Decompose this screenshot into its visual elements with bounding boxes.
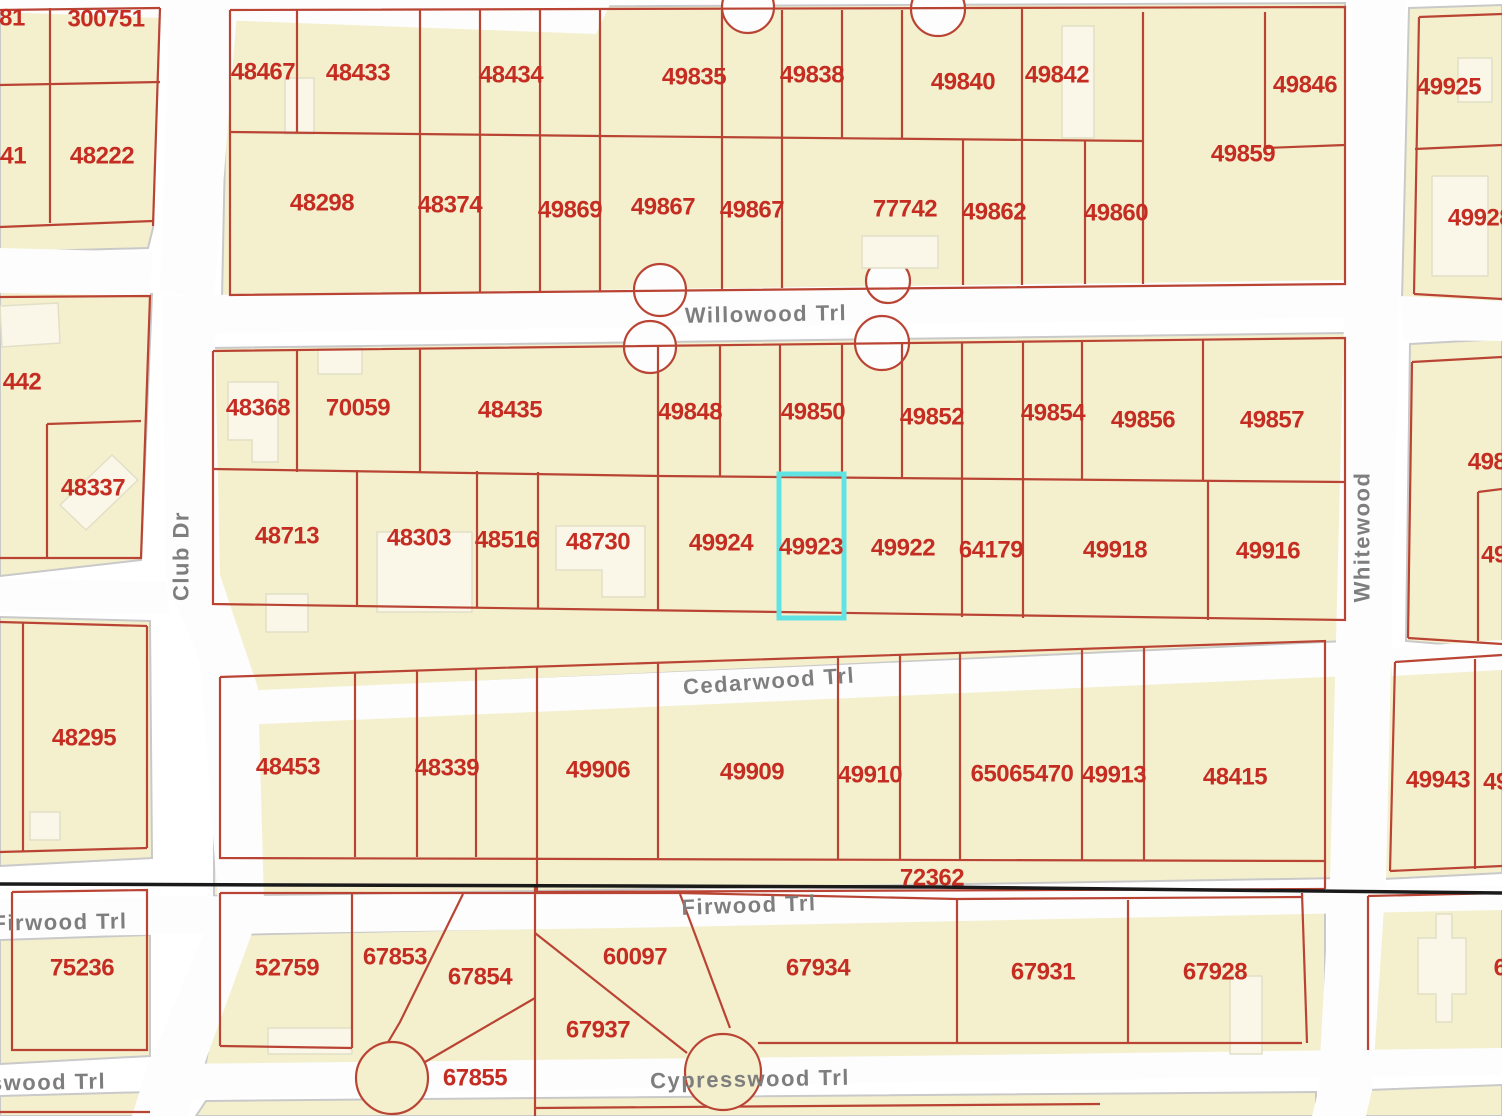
parcel-map-canvas[interactable]: 8130075148441482224846748433484344983549… xyxy=(0,0,1502,1116)
parcel-label[interactable]: 49910 xyxy=(838,762,902,789)
street-name-label: Firwood Trl xyxy=(681,890,817,920)
parcel-label[interactable]: 48434 xyxy=(479,62,544,89)
parcel-label[interactable]: 67931 xyxy=(1011,959,1075,986)
parcel-label[interactable]: 300751 xyxy=(67,6,144,33)
parcel-label[interactable]: 49848 xyxy=(658,399,722,426)
parcel-label[interactable]: 60097 xyxy=(603,944,667,971)
parcel-map-viewport[interactable]: 8130075148441482224846748433484344983549… xyxy=(0,0,1502,1116)
building-footprint xyxy=(0,303,60,347)
building-footprint xyxy=(30,812,60,840)
parcel-label[interactable]: 49856 xyxy=(1111,407,1175,434)
parcel-label[interactable]: 48295 xyxy=(52,725,116,752)
parcel-label[interactable]: 49854 xyxy=(1021,400,1086,427)
city-block xyxy=(0,6,160,252)
street-name-label: Cypresswood Trl xyxy=(650,1065,850,1093)
parcel-label[interactable]: 81 xyxy=(0,5,25,32)
parcel-label[interactable]: 49860 xyxy=(1084,200,1148,227)
parcel-label[interactable]: 49859 xyxy=(1211,141,1275,168)
building-footprint xyxy=(862,236,938,268)
parcel-label[interactable]: 67854 xyxy=(448,964,513,991)
parcel-label[interactable]: 48222 xyxy=(70,143,134,170)
parcel-label[interactable]: 48441 xyxy=(0,143,26,170)
parcel-label[interactable]: 49838 xyxy=(780,62,844,89)
parcel-label[interactable]: 49850 xyxy=(781,399,845,426)
parcel-label[interactable]: 48339 xyxy=(415,755,479,782)
parcel-label[interactable]: 6 xyxy=(1494,955,1502,982)
street-name-label: Firwood Trl xyxy=(0,908,128,935)
parcel-label[interactable]: 48415 xyxy=(1203,764,1267,791)
parcel-label[interactable]: 48467 xyxy=(231,59,295,86)
parcel-label[interactable]: 67853 xyxy=(363,944,427,971)
city-block xyxy=(1406,339,1502,649)
street-name-label: Whitewood xyxy=(1350,472,1375,603)
city-block xyxy=(535,1092,1316,1116)
parcel-label[interactable]: 49909 xyxy=(720,759,784,786)
parcel-label[interactable]: 49846 xyxy=(1273,72,1337,99)
willowood-left-road xyxy=(0,248,152,296)
parcel-label[interactable]: 49842 xyxy=(1025,62,1089,89)
parcel-label[interactable]: 49918 xyxy=(1083,537,1147,564)
parcel-label[interactable]: 49835 xyxy=(662,64,726,91)
parcel-label[interactable]: 48453 xyxy=(256,754,320,781)
parcel-label[interactable]: 49867 xyxy=(631,194,695,221)
street-name-label: Club Dr xyxy=(169,511,194,601)
parcel-label[interactable]: 65065470 xyxy=(971,761,1074,788)
parcel-label[interactable]: 49922 xyxy=(871,535,935,562)
city-block xyxy=(1362,1085,1502,1116)
street-name-label: swood Trl xyxy=(0,1068,106,1095)
parcel-label[interactable]: 49925 xyxy=(1417,74,1481,101)
parcel-label[interactable]: 49 xyxy=(1481,542,1502,569)
parcel-label[interactable]: 49862 xyxy=(962,199,1026,226)
willowood-right-road xyxy=(1400,296,1502,341)
parcel-label[interactable]: 72362 xyxy=(900,865,964,892)
parcel-label[interactable]: 49867 xyxy=(720,197,784,224)
parcel-label[interactable]: 48337 xyxy=(61,475,125,502)
street-name-label: Willowood Trl xyxy=(685,300,848,328)
parcel-label[interactable]: 67937 xyxy=(566,1017,630,1044)
city-block xyxy=(222,3,1345,298)
parcel-label[interactable]: 49852 xyxy=(900,404,964,431)
parcel-label[interactable]: 49913 xyxy=(1082,762,1146,789)
building-footprint xyxy=(266,594,308,632)
parcel-label[interactable]: 49924 xyxy=(689,530,754,557)
parcel-label[interactable]: 48435 xyxy=(478,397,542,424)
parcel-label[interactable]: 52759 xyxy=(255,955,319,982)
parcel-label[interactable]: 49923 xyxy=(779,534,843,561)
parcel-label[interactable]: 48368 xyxy=(226,395,290,422)
parcel-label[interactable]: 70059 xyxy=(326,395,390,422)
whitewood-bottom-road xyxy=(1312,1090,1372,1116)
parcel-label[interactable]: 77742 xyxy=(873,196,937,223)
parcel-label[interactable]: 49840 xyxy=(931,69,995,96)
city-block xyxy=(1384,644,1502,879)
parcel-label[interactable]: 64179 xyxy=(959,537,1023,564)
parcel-label[interactable]: 49857 xyxy=(1240,407,1304,434)
cedarwood-left-road xyxy=(0,578,170,614)
building-footprint xyxy=(285,78,314,134)
building-footprint xyxy=(268,1028,352,1054)
parcel-label[interactable]: 48298 xyxy=(290,190,354,217)
parcel-label[interactable]: 49906 xyxy=(566,757,630,784)
parcel-label[interactable]: 48730 xyxy=(566,529,630,556)
culdesac-lot-boundary xyxy=(356,1042,428,1114)
parcel-label[interactable]: 48374 xyxy=(418,192,483,219)
parcel-label[interactable]: 48516 xyxy=(475,527,539,554)
parcel-label[interactable]: 498 xyxy=(1468,449,1502,476)
parcel-label[interactable]: 49928 xyxy=(1448,205,1502,232)
parcel-label[interactable]: 49916 xyxy=(1236,538,1300,565)
parcel-label[interactable]: 49 xyxy=(1483,769,1502,796)
parcel-label[interactable]: 49943 xyxy=(1406,767,1470,794)
parcel-label[interactable]: 48433 xyxy=(326,60,390,87)
building-footprint xyxy=(318,348,362,374)
parcel-label[interactable]: 75236 xyxy=(50,955,114,982)
parcel-label[interactable]: 67928 xyxy=(1183,959,1247,986)
parcel-label[interactable]: 48303 xyxy=(387,525,451,552)
parcel-label[interactable]: 442 xyxy=(3,369,42,396)
parcel-label[interactable]: 67934 xyxy=(786,955,851,982)
parcel-label[interactable]: 49869 xyxy=(538,197,602,224)
parcel-label[interactable]: 48713 xyxy=(255,523,319,550)
parcel-label[interactable]: 67855 xyxy=(443,1065,507,1092)
